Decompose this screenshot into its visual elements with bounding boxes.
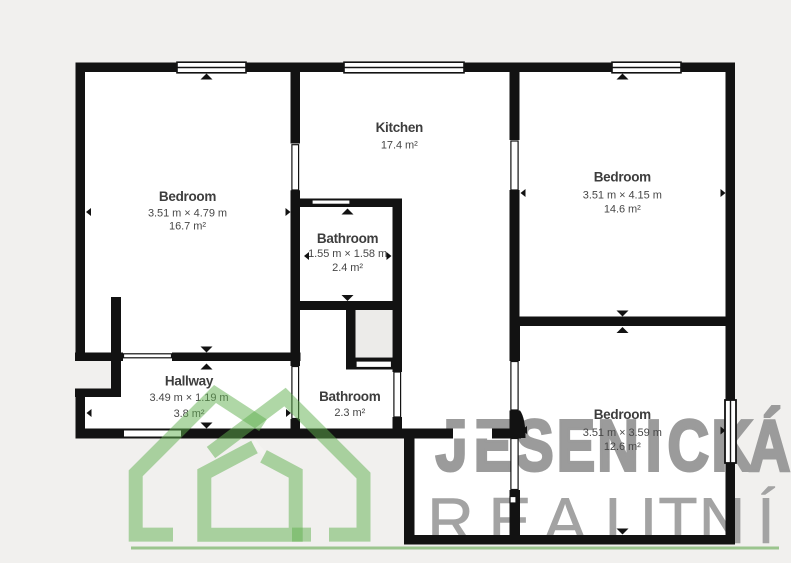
svg-text:Kitchen: Kitchen (376, 120, 423, 135)
svg-text:Í: Í (757, 485, 775, 557)
svg-text:2.4 m²: 2.4 m² (332, 262, 363, 274)
svg-text:T: T (658, 485, 697, 557)
svg-text:2.3 m²: 2.3 m² (334, 407, 365, 419)
svg-text:N: N (699, 485, 746, 557)
svg-text:3.51 m × 4.15 m: 3.51 m × 4.15 m (583, 189, 662, 201)
svg-text:17.4 m²: 17.4 m² (381, 139, 418, 151)
svg-text:I: I (640, 485, 658, 557)
svg-text:C: C (668, 405, 710, 486)
svg-text:3.51 m × 3.59 m: 3.51 m × 3.59 m (583, 427, 662, 439)
svg-text:14.6 m²: 14.6 m² (604, 203, 641, 215)
svg-text:E: E (557, 405, 595, 486)
svg-text:Bedroom: Bedroom (159, 189, 216, 204)
svg-text:12.6 m²: 12.6 m² (604, 441, 641, 453)
svg-text:Á: Á (749, 405, 791, 486)
svg-text:A: A (543, 485, 586, 557)
svg-text:Bedroom: Bedroom (594, 407, 651, 422)
svg-text:1.55 m × 1.58 m: 1.55 m × 1.58 m (308, 248, 387, 260)
svg-text:E: E (474, 405, 512, 486)
svg-text:Hallway: Hallway (165, 373, 214, 388)
svg-text:3.51 m × 4.79 m: 3.51 m × 4.79 m (148, 207, 227, 219)
svg-text:Bedroom: Bedroom (594, 169, 651, 184)
svg-text:R: R (427, 485, 474, 557)
svg-text:Bathroom: Bathroom (317, 231, 379, 246)
svg-text:L: L (605, 485, 641, 557)
svg-text:16.7 m²: 16.7 m² (169, 221, 206, 233)
svg-text:J: J (436, 405, 468, 486)
svg-text:Bathroom: Bathroom (319, 389, 381, 404)
